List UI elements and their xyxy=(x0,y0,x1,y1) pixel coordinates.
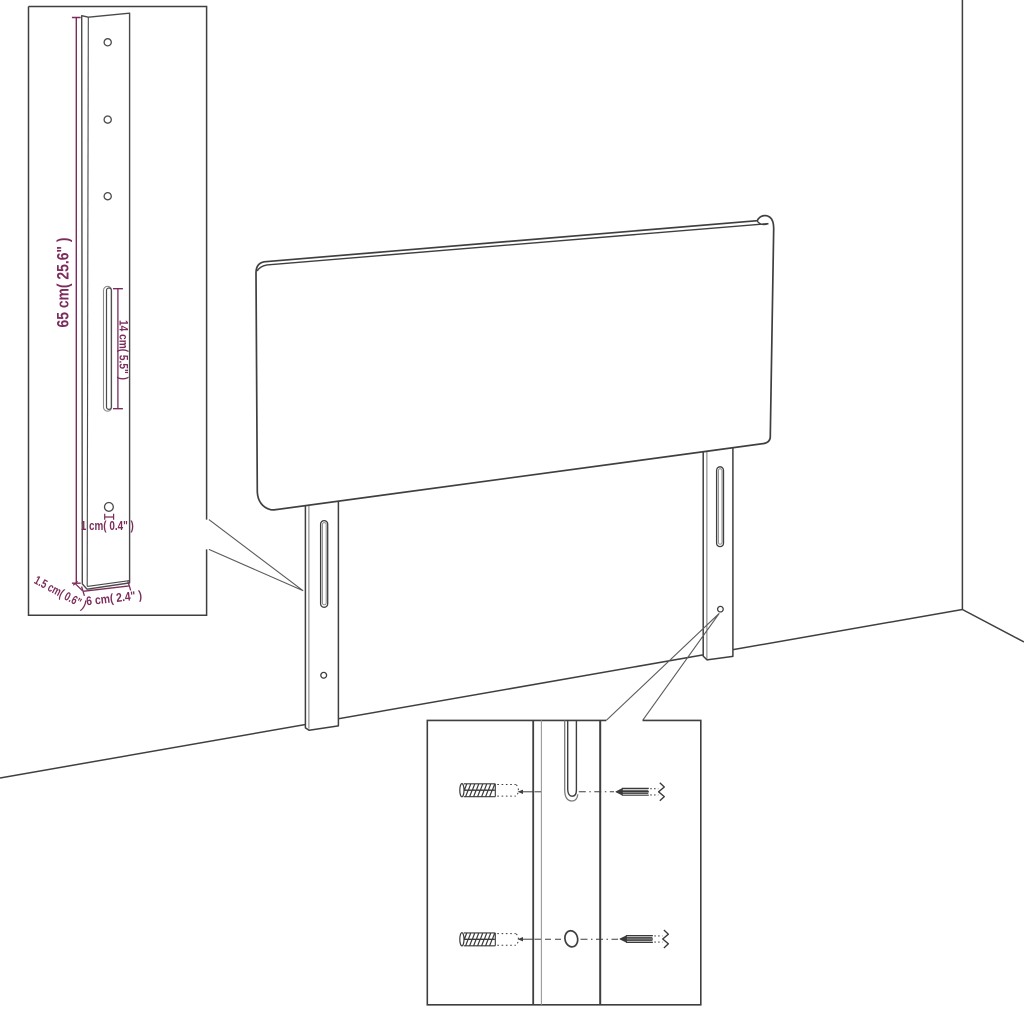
svg-text:65 cm( 25.6" ): 65 cm( 25.6" ) xyxy=(55,238,73,328)
svg-text:14 cm( 5.5" ): 14 cm( 5.5" ) xyxy=(117,320,129,380)
svg-text:1 cm( 0.4" ): 1 cm( 0.4" ) xyxy=(81,518,134,533)
